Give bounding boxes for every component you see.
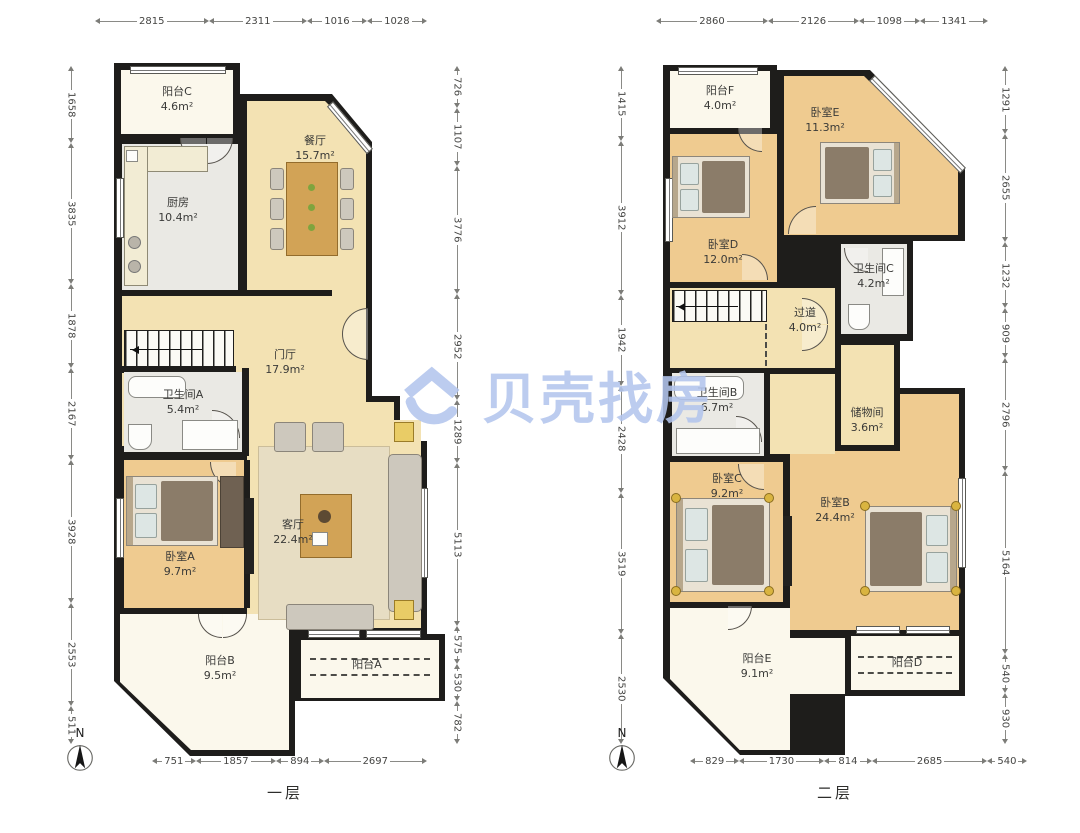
room-label-living: 客厅22.4m² — [238, 518, 348, 548]
room-label-bedroom-e: 卧室E11.3m² — [770, 106, 880, 136]
dimension-label: 540 — [1000, 662, 1011, 685]
bed-post — [951, 586, 961, 596]
dimension-segment: 751 — [152, 754, 196, 768]
dimension-segment: 1028 — [367, 14, 427, 28]
headboard — [127, 477, 133, 545]
dimension-label: 1878 — [66, 311, 77, 340]
headboard — [673, 157, 678, 217]
dimension-label: 3928 — [66, 517, 77, 546]
pillow — [680, 189, 699, 211]
chair — [270, 198, 284, 220]
dimension-segment: 3835 — [64, 143, 78, 283]
dimension-label: 2815 — [137, 16, 166, 27]
stove — [126, 150, 138, 162]
blanket — [161, 481, 212, 541]
dimension-segment: 2860 — [656, 14, 768, 28]
dimension-ruler-bottom-f1: 751 1857 894 2697 — [152, 754, 427, 768]
floor1-caption: 一层 — [240, 782, 330, 803]
room-label-balcony-c: 阳台C4.6m² — [121, 85, 233, 115]
dimension-label: 2311 — [243, 16, 272, 27]
dimension-label: 3776 — [452, 215, 463, 244]
dimension-segment: 1878 — [64, 284, 78, 368]
balcony-open-boundary — [310, 674, 430, 676]
blanket — [712, 505, 764, 586]
dimension-ruler-left-f1: 1658 3835 1878 2167 3928 2553 511 — [64, 66, 78, 744]
dimension-label: 1107 — [452, 122, 463, 151]
dimension-label: 1658 — [66, 90, 77, 119]
dimension-segment: 3776 — [450, 166, 464, 294]
chair — [270, 228, 284, 250]
bed — [820, 142, 900, 204]
floor1-plan: 阳台C4.6m² 餐厅15.7m² 厨房10.4m² 门厅17.9m² 卫生间A… — [60, 58, 452, 764]
dimension-segment: 2685 — [872, 754, 986, 768]
headboard — [950, 507, 956, 591]
stairs-arrow-icon — [676, 306, 738, 307]
dimension-segment: 2126 — [768, 14, 859, 28]
dimension-ruler-top-f1: 2815 2311 1016 1028 — [95, 14, 427, 28]
room-label-dining: 餐厅15.7m² — [260, 134, 370, 164]
north-label: N — [600, 726, 644, 740]
dimension-label: 2697 — [361, 756, 390, 767]
dimension-label: 782 — [452, 711, 463, 734]
dimension-segment: 1658 — [64, 66, 78, 143]
room-label-bedroom-c: 卧室C9.2m² — [672, 472, 782, 502]
dimension-ruler-left-f2: 1415 3912 1942 2428 3519 2530 — [614, 66, 628, 744]
room-label-balcony-f: 阳台F4.0m² — [665, 84, 775, 114]
dimension-label: 5113 — [452, 530, 463, 559]
dimension-label: 530 — [452, 671, 463, 694]
dimension-label: 1942 — [616, 325, 627, 354]
pillow — [135, 513, 157, 538]
bed-post — [951, 501, 961, 511]
dimension-label: 2860 — [697, 16, 726, 27]
room-label-hallway: 过道4.0m² — [750, 306, 860, 336]
dimension-label: 1291 — [1000, 85, 1011, 114]
chair — [270, 168, 284, 190]
dimension-label: 2167 — [66, 399, 77, 428]
dimension-segment: 5164 — [998, 471, 1012, 654]
floor2-caption: 二层 — [790, 782, 880, 803]
chair — [340, 198, 354, 220]
window — [116, 498, 124, 558]
window — [906, 626, 950, 634]
dimension-label: 829 — [703, 756, 726, 767]
decor-dot — [308, 204, 315, 211]
dimension-segment: 3928 — [64, 460, 78, 603]
pillow — [680, 163, 699, 185]
dimension-segment: 814 — [824, 754, 873, 768]
dimension-segment: 909 — [998, 308, 1012, 358]
compass-f2: N — [600, 726, 644, 778]
dimension-segment: 2167 — [64, 368, 78, 460]
compass-icon — [605, 740, 639, 774]
dimension-label: 2530 — [616, 674, 627, 703]
chair — [340, 168, 354, 190]
dimension-segment: 829 — [690, 754, 739, 768]
room-label-foyer: 门厅17.9m² — [230, 348, 340, 378]
dimension-ruler-bottom-f2: 829 1730 814 2685 540 — [690, 754, 1027, 768]
dimension-label: 1028 — [382, 16, 411, 27]
stairs-arrow-icon — [130, 349, 202, 350]
dimension-segment: 1232 — [998, 242, 1012, 308]
room-label-bath-a: 卫生间A5.4m² — [124, 388, 242, 418]
dimension-label: 814 — [836, 756, 859, 767]
room-label-bedroom-d: 卧室D12.0m² — [668, 238, 778, 268]
dimension-segment: 1098 — [859, 14, 920, 28]
armchair — [274, 422, 306, 452]
dimension-segment: 530 — [450, 664, 464, 701]
pillow — [685, 549, 707, 582]
room-label-bedroom-a: 卧室A9.7m² — [120, 550, 240, 580]
dimension-label: 2685 — [915, 756, 944, 767]
dimension-segment: 782 — [450, 701, 464, 744]
sink — [128, 260, 141, 273]
dimension-segment: 1857 — [196, 754, 276, 768]
chair — [340, 228, 354, 250]
floor2-plan: 阳台F4.0m² 卧室E11.3m² 卧室D12.0m² 卫生间C4.2m² 过… — [610, 58, 970, 764]
room-label-kitchen: 厨房10.4m² — [122, 196, 234, 226]
bed-post — [764, 586, 774, 596]
side-table — [394, 422, 414, 442]
dimension-segment: 726 — [450, 66, 464, 108]
toilet — [128, 424, 152, 450]
window — [856, 626, 900, 634]
dimension-label: 894 — [288, 756, 311, 767]
dimension-label: 1341 — [939, 16, 968, 27]
dimension-segment: 1730 — [739, 754, 823, 768]
dimension-segment: 2952 — [450, 294, 464, 400]
dimension-label: 540 — [995, 756, 1018, 767]
room-label-balcony-e: 阳台E9.1m² — [702, 652, 812, 682]
side-table — [394, 600, 414, 620]
dimension-segment: 2428 — [614, 386, 628, 493]
window — [678, 67, 758, 75]
wall — [242, 368, 249, 456]
dimension-segment: 3519 — [614, 493, 628, 634]
dimension-label: 2428 — [616, 424, 627, 453]
dimension-ruler-top-f2: 2860 2126 1098 1341 — [656, 14, 988, 28]
floorplan-canvas: 阳台C4.6m² 餐厅15.7m² 厨房10.4m² 门厅17.9m² 卫生间A… — [0, 0, 1080, 833]
dimension-label: 2655 — [1000, 173, 1011, 202]
dimension-segment: 2311 — [209, 14, 307, 28]
dimension-segment: 1289 — [450, 400, 464, 463]
window — [958, 478, 966, 568]
pillow — [135, 484, 157, 509]
dimension-segment: 1341 — [920, 14, 988, 28]
decor-dot — [308, 184, 315, 191]
compass-icon — [63, 740, 97, 774]
wall — [122, 452, 244, 460]
window — [366, 630, 421, 638]
dimension-segment: 5113 — [450, 463, 464, 625]
dimension-segment: 1291 — [998, 66, 1012, 134]
dimension-segment: 2815 — [95, 14, 209, 28]
dimension-label: 751 — [162, 756, 185, 767]
bed-post — [671, 586, 681, 596]
dimension-label: 909 — [1000, 322, 1011, 345]
dimension-label: 1098 — [875, 16, 904, 27]
blanket — [702, 161, 745, 214]
armchair — [312, 422, 344, 452]
dimension-segment: 1107 — [450, 108, 464, 166]
compass-f1: N — [58, 726, 102, 778]
tv-cabinet — [783, 516, 792, 586]
dimension-segment: 1942 — [614, 295, 628, 386]
window — [130, 66, 226, 74]
room-label-balcony-d: 阳台D — [852, 656, 962, 671]
dimension-segment: 1415 — [614, 66, 628, 141]
sink — [128, 236, 141, 249]
decor-dot — [308, 224, 315, 231]
dimension-label: 2553 — [66, 640, 77, 669]
dimension-segment: 3912 — [614, 141, 628, 295]
dimension-ruler-right-f2: 1291 2655 1232 909 2796 5164 540 930 — [998, 66, 1012, 744]
pillow — [926, 515, 948, 546]
room-label-bedroom-b: 卧室B24.4m² — [780, 496, 890, 526]
dimension-label: 1289 — [452, 417, 463, 446]
dimension-label: 3912 — [616, 203, 627, 232]
sofa — [388, 454, 422, 612]
dimension-segment: 1016 — [307, 14, 367, 28]
dimension-label: 1415 — [616, 89, 627, 118]
dimension-label: 1016 — [322, 16, 351, 27]
dimension-segment: 2553 — [64, 603, 78, 706]
dimension-label: 1232 — [1000, 261, 1011, 290]
room-label-storage: 储物间3.6m² — [812, 406, 922, 436]
dimension-label: 930 — [1000, 707, 1011, 730]
dimension-segment: 575 — [450, 626, 464, 664]
headboard — [677, 499, 683, 591]
dimension-label: 2126 — [799, 16, 828, 27]
dimension-segment: 2655 — [998, 134, 1012, 242]
room-label-balcony-a: 阳台A — [312, 658, 422, 673]
dimension-segment: 540 — [987, 754, 1027, 768]
sink-counter — [676, 428, 760, 454]
dimension-segment: 2796 — [998, 358, 1012, 471]
room-label-bath-b: 卫生间B6.7m² — [662, 386, 772, 416]
room-label-bath-c: 卫生间C4.2m² — [816, 262, 931, 292]
dimension-segment: 894 — [276, 754, 324, 768]
dimension-label: 2952 — [452, 332, 463, 361]
dimension-label: 1730 — [767, 756, 796, 767]
balcony-open-boundary — [858, 672, 952, 674]
dimension-ruler-right-f1: 726 1107 3776 2952 1289 5113 575 530 782 — [450, 66, 464, 744]
dimension-label: 726 — [452, 75, 463, 98]
pillow — [873, 149, 892, 171]
dimension-label: 2796 — [1000, 400, 1011, 429]
dimension-segment: 2697 — [324, 754, 427, 768]
window — [308, 630, 360, 638]
dimension-label: 575 — [452, 633, 463, 656]
room-label-balcony-b: 阳台B9.5m² — [165, 654, 275, 684]
dimension-label: 5164 — [1000, 548, 1011, 577]
pillow — [685, 508, 707, 541]
bench — [286, 604, 374, 630]
bed — [676, 498, 770, 592]
bed — [672, 156, 750, 218]
dimension-label: 1857 — [221, 756, 250, 767]
bed-post — [860, 586, 870, 596]
pillow — [873, 175, 892, 197]
dimension-segment: 930 — [998, 693, 1012, 744]
blanket — [825, 147, 869, 200]
pillow — [926, 552, 948, 583]
bed — [126, 476, 218, 546]
dimension-segment: 540 — [998, 654, 1012, 693]
sink-counter — [182, 420, 238, 450]
dimension-label: 3835 — [66, 199, 77, 228]
headboard — [894, 143, 899, 203]
dimension-label: 3519 — [616, 549, 627, 578]
north-label: N — [58, 726, 102, 740]
